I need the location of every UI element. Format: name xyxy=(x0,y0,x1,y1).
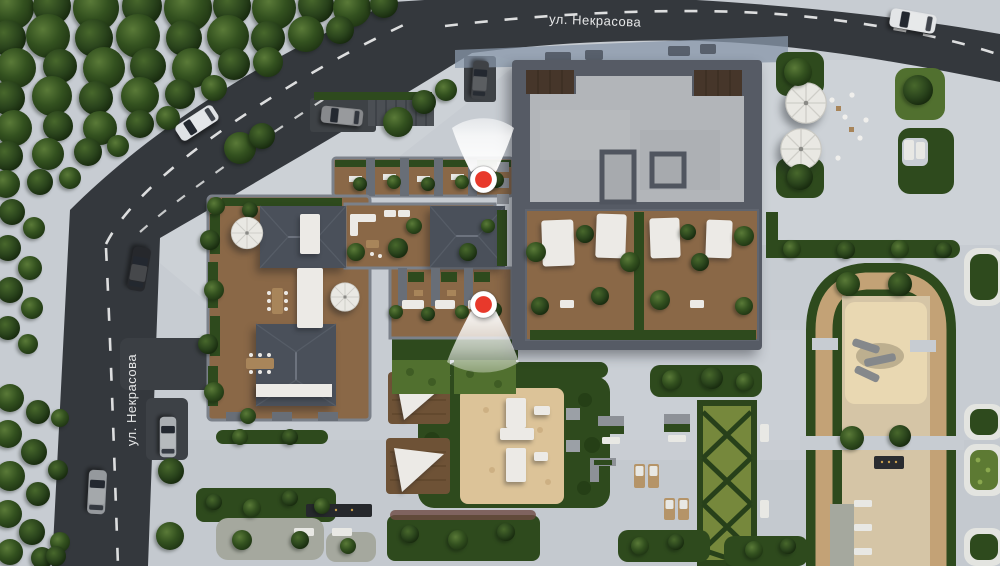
skylight-2 xyxy=(300,214,320,254)
path-crossing xyxy=(812,338,838,350)
car-parked-north xyxy=(471,60,490,100)
gravel-strip xyxy=(830,504,854,566)
park-bench xyxy=(854,548,872,555)
street-label-left: ул. Некрасова xyxy=(124,354,139,446)
garden-bench xyxy=(760,424,769,442)
flowering-hedge-top xyxy=(390,510,536,520)
roof-stub xyxy=(652,154,684,186)
skylight xyxy=(297,268,323,328)
car-parked-layby xyxy=(160,417,177,457)
walkway-canopy xyxy=(256,384,332,397)
camera-point-icon xyxy=(475,171,492,188)
cafe-umbrella xyxy=(786,83,827,124)
path-crossing xyxy=(800,436,964,450)
roof-stub xyxy=(602,152,634,202)
shade-sail-deck-2 xyxy=(386,438,450,494)
linear-park xyxy=(800,281,964,566)
path-crossing xyxy=(910,340,936,352)
terrace-umbrella xyxy=(231,217,263,249)
cafe-umbrella xyxy=(781,129,822,170)
car-silver xyxy=(87,470,107,515)
park-bench xyxy=(854,524,872,531)
masterplan-render: ул. Некрасова ул. Некрасова xyxy=(0,0,1000,566)
terrace-umbrella xyxy=(331,283,360,312)
camera-point-icon xyxy=(475,296,492,313)
park-bench xyxy=(854,500,872,507)
garden-bench xyxy=(760,500,769,518)
